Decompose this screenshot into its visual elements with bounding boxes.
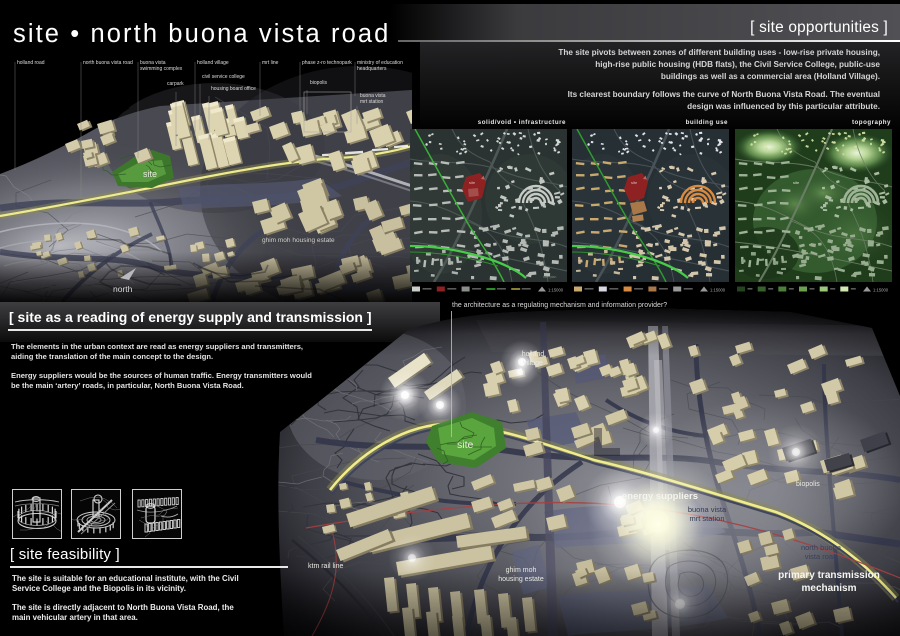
svg-text:mrt station: mrt station: [689, 514, 724, 523]
svg-text:ktm rail line: ktm rail line: [308, 563, 344, 570]
svg-text:buona vista: buona vista: [688, 505, 727, 514]
svg-text:1:15000: 1:15000: [710, 288, 726, 293]
svg-text:mechanism: mechanism: [801, 583, 856, 594]
svg-text:north: north: [113, 284, 133, 294]
svg-text:site: site: [457, 439, 474, 451]
svg-text:site plan: site plan: [543, 275, 556, 279]
svg-text:north buona: north buona: [801, 543, 842, 552]
svg-text:housing estate: housing estate: [498, 576, 544, 583]
svg-text:holland: holland: [522, 351, 545, 358]
svg-text:village: village: [523, 360, 543, 367]
svg-text:site: site: [631, 180, 638, 185]
svg-text:primary transmission: primary transmission: [778, 570, 880, 581]
svg-text:ghim moh housing estate: ghim moh housing estate: [262, 237, 335, 244]
svg-text:1:15000: 1:15000: [548, 288, 564, 293]
svg-text:site: site: [793, 180, 800, 185]
svg-text:site: site: [469, 180, 476, 185]
svg-text:ghim moh: ghim moh: [506, 567, 537, 574]
svg-text:energy suppliers: energy suppliers: [622, 491, 698, 502]
svg-text:biopolis: biopolis: [796, 481, 820, 488]
svg-text:vista road: vista road: [805, 552, 838, 561]
svg-text:1:15000: 1:15000: [873, 288, 889, 293]
